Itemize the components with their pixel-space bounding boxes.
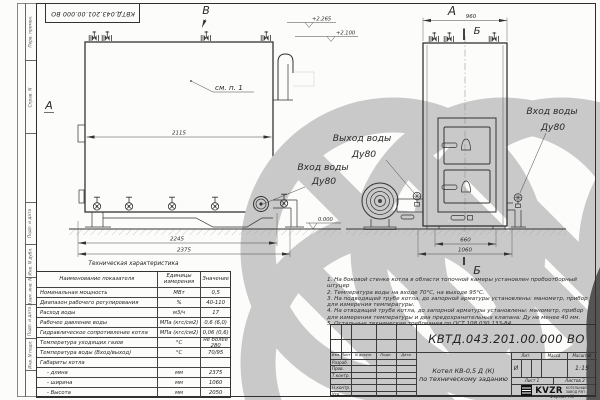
col-izm: Изм. — [331, 353, 341, 357]
title-block-doc-number: КВТД.043.201.00.000 ВО — [416, 325, 597, 352]
table-row: - ширинамм1060 — [37, 377, 230, 387]
margin-box — [26, 134, 36, 203]
col-podp: Подп. — [376, 353, 396, 357]
margin-label: Подп. и дата — [29, 209, 34, 238]
note-1: 1. На боковой стенке котла в области топ… — [327, 277, 594, 290]
title-block: Изм. Лист N докум. Подп. Дата Разраб. Пр… — [330, 324, 596, 396]
sheets-total: Листов 2 — [553, 378, 597, 383]
table-row: Диапазон рабочего регулирования%40-110 — [37, 297, 230, 307]
row-value: 0,6 (6,0) — [201, 318, 230, 327]
lit-value: И — [511, 359, 521, 377]
row-value: 1060 — [201, 378, 230, 387]
table-row: Расход водым3/ч17 — [37, 307, 230, 317]
note-4: 4. На отводящей трубе котла, до запорной… — [327, 308, 594, 321]
scale-value: 1:15 — [567, 359, 597, 377]
sheet-number: Лист 1 — [511, 378, 553, 383]
table-header-row: Наименование показателя Единицы измерени… — [37, 272, 230, 287]
margin-box — [26, 371, 36, 396]
col-header: Единицы измерения — [158, 272, 202, 287]
margin-label: Справ. N — [29, 87, 34, 107]
product-line2: по техническому заданию — [419, 375, 508, 383]
row-name: Температура уходящих газов — [37, 338, 158, 347]
row-value: 17 — [201, 308, 230, 317]
margin-box: Инв. N подл. — [26, 339, 36, 371]
row-unit: мм — [158, 368, 202, 377]
sig-utv: Утв. — [332, 392, 341, 397]
col-header: Значение — [201, 272, 230, 287]
row-name: Температура воды (Вход/выход) — [37, 348, 158, 357]
margin-label: Инв. N подл. — [29, 340, 34, 368]
row-unit: м3/ч — [158, 308, 202, 317]
tech-table: Наименование показателя Единицы измерени… — [36, 271, 231, 398]
frame-margin-column: Перв. примен. Справ. N Подп. и дата Инв.… — [25, 3, 36, 397]
divider — [331, 339, 416, 340]
divider — [521, 359, 522, 377]
table-row: Габариты котла — [37, 357, 230, 367]
row-name: Рабочее давление воды — [37, 318, 158, 327]
row-name: - Высота — [37, 388, 158, 397]
row-unit: МПа (кгс/см2) — [158, 318, 202, 327]
kvzr-logo-caption: КОТЕЛЬНЫЙ ЗАВОД РЭП — [566, 387, 587, 394]
divider — [531, 359, 532, 377]
table-row: Гидравлическое сопротивление котлаМПа (к… — [37, 327, 230, 337]
row-name: Номинальная мощность — [37, 288, 158, 297]
row-name: - ширина — [37, 378, 158, 387]
table-row: Температура уходящих газов°Сне более 280 — [37, 337, 230, 347]
margin-box: Взам. инв. N — [26, 278, 36, 305]
divider — [331, 378, 416, 379]
margin-label: Взам. инв. N — [29, 277, 34, 305]
col-header: Наименование показателя — [37, 272, 158, 287]
technical-notes: 1. На боковой стенке котла в области топ… — [327, 277, 594, 327]
tech-table-title: Техническая характеристика — [36, 261, 231, 267]
row-unit: МВт — [158, 288, 202, 297]
divider — [396, 325, 397, 397]
kvzr-logo-icon — [521, 385, 532, 396]
row-unit: МПа (кгс/см2) — [158, 328, 202, 337]
row-name: Гидравлическое сопротивление котла — [37, 328, 158, 337]
row-value: не более 280 — [201, 338, 230, 347]
margin-box: Инв. N дубл. — [26, 245, 36, 278]
product-name: Котел КВ-0,5 Д (К) по техническому задан… — [416, 352, 511, 397]
row-unit: °С — [158, 338, 202, 347]
divider — [376, 325, 377, 397]
margin-label: Перв. примен. — [29, 15, 34, 47]
table-row: - Высотамм2050 — [37, 387, 230, 397]
margin-label: Подп. и дата — [29, 307, 34, 336]
margin-box: Подп. и дата — [26, 203, 36, 245]
top-stamp: КВТД.043.201.00.000 ВО — [45, 3, 140, 23]
row-unit: мм — [158, 378, 202, 387]
table-row: Температура воды (Вход/выход)°С70/95 — [37, 347, 230, 357]
row-value: 40-110 — [201, 298, 230, 307]
sig-tkontr: Т.контр. — [332, 373, 350, 378]
table-row: - длинамм2375 — [37, 367, 230, 377]
top-stamp-number: КВТД.043.201.00.000 ВО — [51, 10, 135, 17]
row-unit: мм — [158, 388, 202, 397]
kvzr-logo-text: KVZR — [535, 386, 562, 396]
scale-header: Масштаб — [567, 353, 597, 358]
table-row: Рабочее давление водыМПа (кгс/см2)0,6 (6… — [37, 317, 230, 327]
format-label: Формат А3 — [530, 396, 594, 400]
col-ndokum: N докум. — [351, 353, 376, 357]
lit-header: Лит. — [511, 353, 541, 358]
row-value — [201, 358, 230, 367]
row-name: - длина — [37, 368, 158, 377]
row-name: Диапазон рабочего регулирования — [37, 298, 158, 307]
row-value: 0,5 — [201, 288, 230, 297]
mass-header: Масса — [541, 353, 567, 358]
col-data: Дата — [396, 353, 416, 357]
sig-prov: Пров. — [332, 366, 344, 371]
divider — [331, 391, 416, 392]
margin-box: Справ. N — [26, 61, 36, 134]
margin-box: Перв. примен. — [26, 3, 36, 61]
drawing-sheet: В А см. п. 1 2115 +2.265 — [0, 0, 600, 400]
margin-box: Подп. и дата — [26, 305, 36, 339]
row-name: Расход воды — [37, 308, 158, 317]
row-unit: °С — [158, 348, 202, 357]
note-3: 3. На подводящей трубе котла, до запорно… — [327, 296, 594, 309]
row-value: 70/95 — [201, 348, 230, 357]
divider — [351, 325, 352, 397]
product-line1: Котел КВ-0,5 Д (К) — [432, 367, 494, 375]
col-list: Лист — [341, 353, 351, 357]
row-unit — [158, 358, 202, 367]
row-name: Габариты котла — [37, 358, 158, 367]
margin-label: Инв. N дубл. — [29, 247, 34, 275]
row-unit: % — [158, 298, 202, 307]
logo-caption-line2: ЗАВОД РЭП — [566, 391, 587, 395]
row-value: 2050 — [201, 388, 230, 397]
sig-nkontr: Н.контр. — [332, 385, 350, 390]
table-row: Номинальная мощностьМВт0,5 — [37, 287, 230, 297]
row-value: 0,06 (0,6) — [201, 328, 230, 337]
sig-razrab: Разраб. — [332, 360, 348, 365]
row-value: 2375 — [201, 368, 230, 377]
